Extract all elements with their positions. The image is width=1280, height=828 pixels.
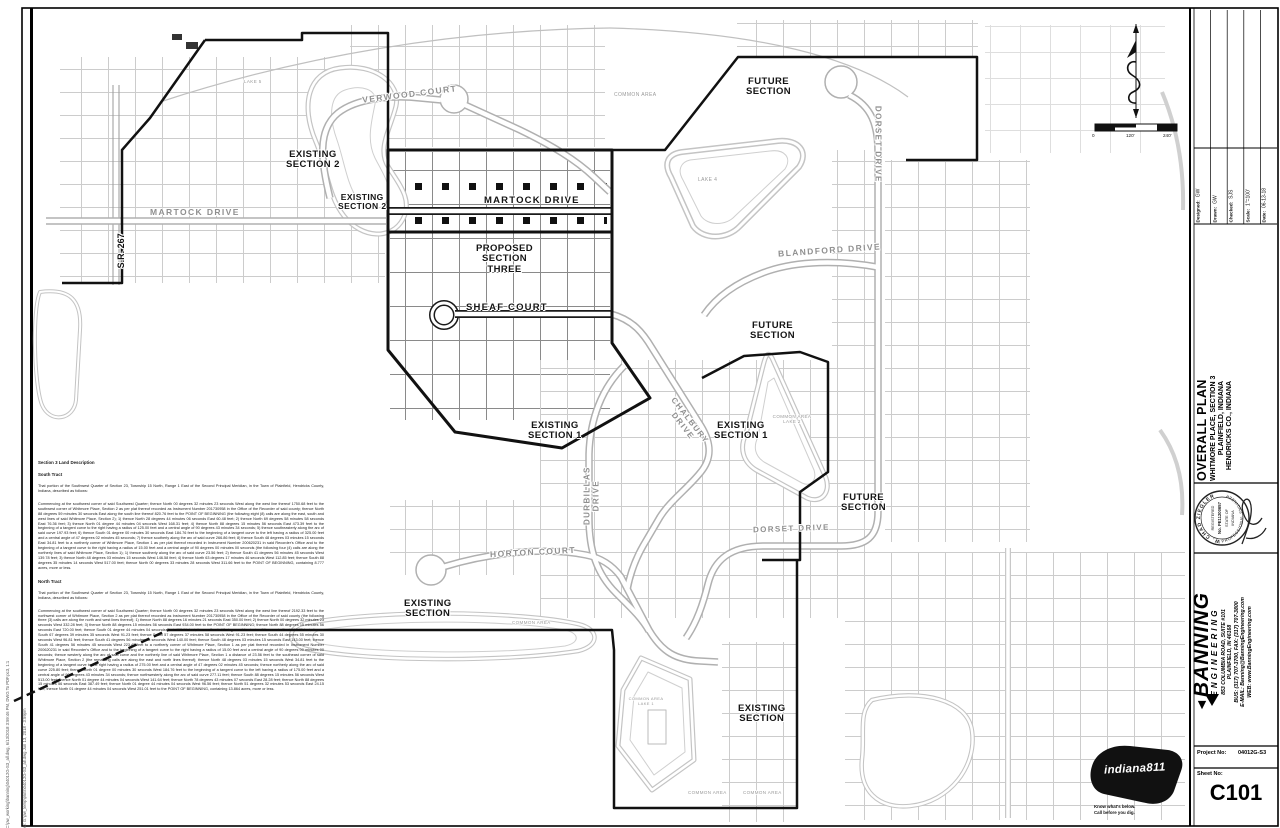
- checked-label: Checked:: [1229, 202, 1234, 223]
- field-drawn: Drawn:GW: [1213, 151, 1226, 223]
- plan-sheet: W. CHAD ZIEGLER PROFESSIONAL ENGINEER RE…: [0, 0, 1280, 828]
- drawn-value: GW: [1213, 195, 1219, 204]
- scale-max-label: 240': [1163, 133, 1172, 138]
- street-label-martock-drive: MARTOCK DRIVE: [484, 196, 580, 206]
- firm-block: ◄BANNING ENGINEERING 853 COLUMBIA ROAD, …: [1193, 562, 1273, 742]
- field-checked: Checked:SJS: [1229, 151, 1242, 223]
- area-label-existing-section-2b: EXISTING SECTION 2: [338, 193, 386, 211]
- left-basin: [35, 291, 80, 417]
- firm-web-line: WEB: www.BanningEngineering.com: [1247, 562, 1254, 742]
- banning-arrow-icon: ◄: [1195, 697, 1208, 712]
- north-tract-heading: North Tract: [38, 579, 324, 584]
- scale-mid-label: 120': [1126, 133, 1135, 138]
- designed-value: GW: [1196, 189, 1202, 198]
- svg-text:No. PE11200657: No. PE11200657: [1217, 501, 1222, 534]
- area-label-future-section-mid: FUTURE SECTION: [750, 321, 795, 342]
- checked-value: SJS: [1229, 190, 1235, 199]
- sheet-title-line4: HENDRICKS CO., INDIANA: [1226, 381, 1234, 481]
- north-tract-intro: That portion of the Southwest Quarter of…: [38, 591, 324, 601]
- area-label-lake-4: LAKE 4: [698, 177, 717, 183]
- area-label-future-section-north: FUTURE SECTION: [746, 77, 791, 98]
- north-tract-body: Commencing at the southwest corner of sa…: [38, 609, 324, 693]
- plot-stamp-line1: C:\pw_working\banning\04012G-S3_all.dwg,…: [5, 579, 13, 828]
- scale-zero-label: 0: [1092, 133, 1095, 138]
- south-tract-heading: South Tract: [38, 472, 324, 477]
- svg-text:REGISTERED: REGISTERED: [1211, 505, 1215, 530]
- sheet-no-label: Sheet No:: [1197, 771, 1223, 777]
- field-designed: Designed:GW: [1196, 151, 1209, 223]
- land-description-heading: Section 3 Land Description: [38, 460, 324, 465]
- project-no-value: 04012G-S3: [1238, 750, 1266, 756]
- sheet-title-line2: WHITMORE PLACE, SECTION 3: [1210, 381, 1218, 481]
- area-label-common-area-s2: COMMON AREA: [743, 790, 782, 795]
- sheet-title: OVERALL PLAN WHITMORE PLACE, SECTION 3 P…: [1195, 381, 1241, 481]
- firm-division: ENGINEERING: [1210, 562, 1219, 742]
- project-no-label: Project No:: [1197, 750, 1226, 756]
- area-label-common-area-pond: COMMON AREA: [512, 620, 551, 625]
- drawn-label: Drawn:: [1213, 207, 1218, 223]
- area-label-common-area-s1: COMMON AREA: [688, 790, 727, 795]
- sheet-title-line1: OVERALL PLAN: [1195, 381, 1210, 481]
- area-label-existing-section-1b: EXISTING SECTION 1: [714, 421, 768, 442]
- area-label-lake-5: LAKE 5: [244, 79, 262, 84]
- street-label-durbillas-drive: DURBILLAS DRIVE: [583, 453, 600, 539]
- street-label-martock-drive-existing: MARTOCK DRIVE: [150, 208, 240, 217]
- area-label-existing-section-sw: EXISTING SECTION: [404, 599, 452, 620]
- plot-stamp-line2: plotted: G:\pw_temp\plots\04012G-S3_all.…: [22, 587, 30, 828]
- sheet-no-value: C101: [1204, 780, 1268, 806]
- street-label-sr-267: S.R. 267: [117, 226, 127, 276]
- street-label-sheaf-court: SHEAF COURT: [466, 303, 548, 313]
- area-label-proposed-section-three: PROPOSED SECTION THREE: [476, 244, 533, 275]
- lake-1: [618, 658, 694, 790]
- lake-4: [667, 141, 803, 237]
- area-label-future-section-south: FUTURE SECTION: [841, 493, 886, 514]
- firm-address: 853 COLUMBIA ROAD, SUITE #101 PLAINFIELD…: [1221, 562, 1254, 742]
- area-label-common-area-north: COMMON AREA: [614, 92, 656, 98]
- scale-label: Scale:: [1246, 209, 1251, 223]
- date-value: 06-13-18: [1262, 188, 1268, 208]
- south-tract-intro: That portion of the Southwest Quarter of…: [38, 484, 324, 494]
- designed-label: Designed:: [1196, 200, 1201, 222]
- field-date: Date:06-13-18: [1262, 151, 1275, 223]
- sheet-title-line3: PLAINFIELD, INDIANA: [1218, 381, 1226, 481]
- scale-bar: [1095, 124, 1177, 131]
- field-scale: Scale:1"=100': [1246, 151, 1259, 223]
- land-description: Section 3 Land Description South Tract T…: [38, 460, 324, 700]
- area-label-lake-1: COMMON AREA LAKE 1: [624, 697, 668, 707]
- area-label-lake-2: COMMON AREA LAKE 2: [770, 414, 814, 425]
- south-tract-body: Commencing at the southwest corner of sa…: [38, 502, 324, 571]
- svg-text:INDIANA: INDIANA: [1231, 510, 1235, 526]
- indiana811-taglines: Know what's below. Call before you dig.: [1094, 804, 1135, 815]
- scale-value: 1"=100': [1246, 189, 1252, 206]
- area-label-existing-section-1a: EXISTING SECTION 1: [528, 421, 582, 442]
- engineer-seal: W. CHAD ZIEGLER PROFESSIONAL ENGINEER RE…: [1195, 491, 1249, 545]
- date-label: Date:: [1262, 211, 1267, 223]
- area-label-existing-section-2a: EXISTING SECTION 2: [286, 150, 340, 171]
- street-label-dorset-drive-east: DORSET DRIVE: [873, 104, 882, 184]
- area-label-existing-section-se: EXISTING SECTION: [738, 704, 786, 725]
- svg-text:STATE OF: STATE OF: [1225, 508, 1229, 527]
